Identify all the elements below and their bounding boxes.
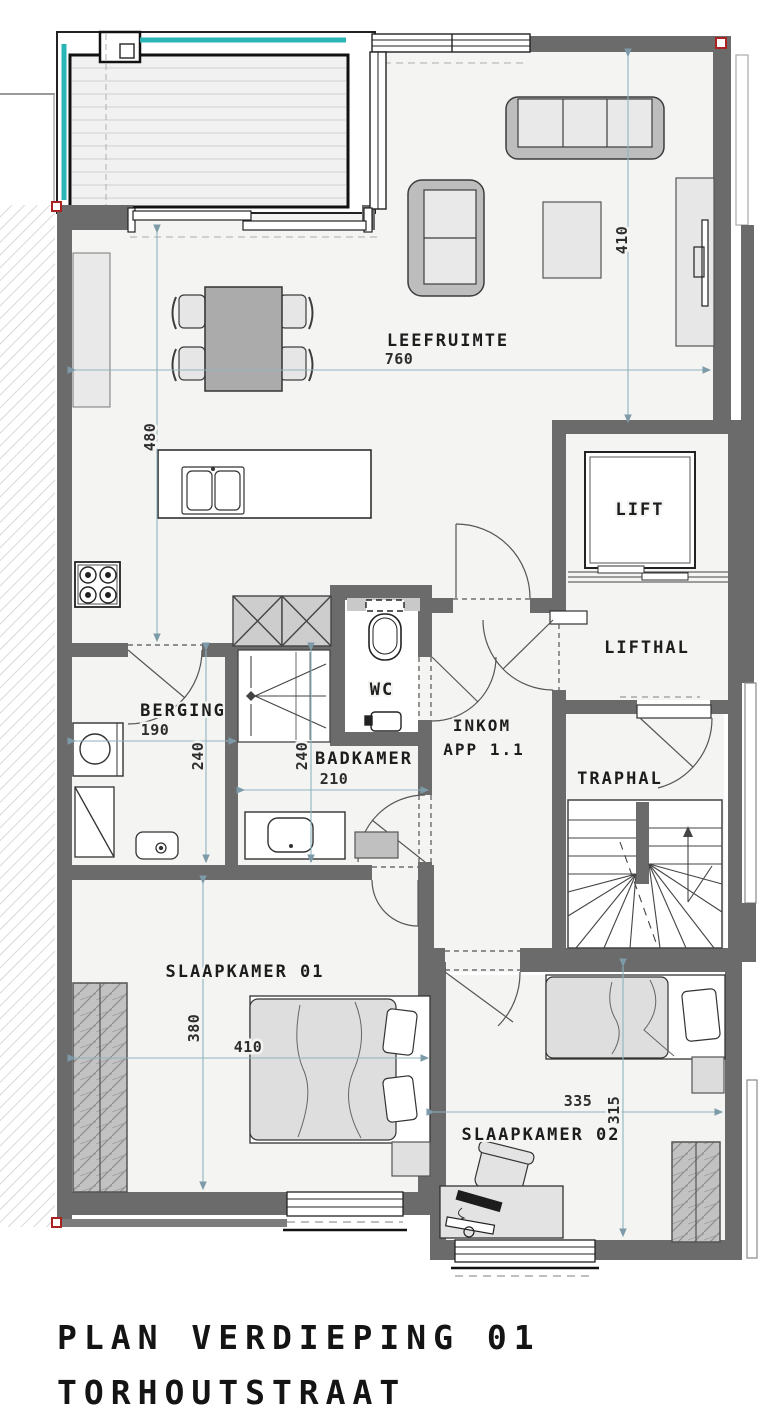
dim-badkamer-depth: 240 xyxy=(293,742,311,771)
badkamer-vanity xyxy=(245,812,345,859)
dim-berging-depth: 240 xyxy=(189,742,207,771)
terrace-deck xyxy=(70,55,348,207)
party-wall-right xyxy=(741,225,754,683)
label-berging: BERGING xyxy=(140,701,226,721)
wardrobe-slaapkamer02 xyxy=(672,1142,720,1242)
dim-badkamer-width: 210 xyxy=(320,770,349,788)
window-slaapkamer02 xyxy=(451,1240,599,1276)
bed-double xyxy=(250,996,430,1143)
dim-berging-width: 190 xyxy=(141,721,170,739)
terrace xyxy=(57,32,375,213)
dim-slk2-depth: 315 xyxy=(605,1096,623,1125)
washing-machine xyxy=(73,723,123,776)
sofa-left xyxy=(408,180,484,296)
label-slaapkamer01: SLAAPKAMER 01 xyxy=(165,962,324,982)
label-slaapkamer02: SLAAPKAMER 02 xyxy=(461,1125,620,1145)
label-leefruimte: LEEFRUIMTE xyxy=(387,331,509,351)
marker-terrace xyxy=(52,202,61,211)
nightstand xyxy=(692,1057,724,1093)
kitchen-counter xyxy=(73,253,110,407)
lift-door-panel-2 xyxy=(642,573,688,580)
tall-cabinets-x xyxy=(233,596,331,646)
cooktop xyxy=(75,562,120,607)
sofa-top xyxy=(506,97,664,159)
label-badkamer: BADKAMER xyxy=(315,749,413,769)
marker-bottom-left xyxy=(52,1218,61,1227)
lift-door-panel-1 xyxy=(598,566,644,573)
window-slaapkamer01 xyxy=(283,1192,407,1230)
berging-appliance xyxy=(136,832,178,859)
bed-single xyxy=(546,975,725,1059)
terrace-drain-box xyxy=(120,44,134,58)
roof-edge-band-top-right xyxy=(736,55,748,225)
plan-title: PLAN VERDIEPING 01 xyxy=(57,1318,541,1357)
dim-slk2-width: 335 xyxy=(564,1092,593,1110)
roof-edge-band-bottom-right xyxy=(747,1080,757,1258)
window-terrace-east xyxy=(370,52,386,209)
berging-cabinet xyxy=(75,787,114,857)
coffee-table xyxy=(543,202,601,278)
title-block: PLAN VERDIEPING 01 TORHOUTSTRAAT xyxy=(57,1318,541,1412)
plan-subtitle: TORHOUTSTRAAT xyxy=(57,1373,406,1412)
badkamer-appliance xyxy=(355,832,398,858)
tv-unit xyxy=(676,178,714,346)
tv-screen xyxy=(702,220,708,306)
marker-top-right xyxy=(716,38,726,48)
shower xyxy=(238,650,330,742)
stairs xyxy=(568,800,722,948)
label-inkom: INKOM xyxy=(453,716,511,735)
party-wall-right-stub xyxy=(741,903,756,962)
dim-leefruimte-depth: 410 xyxy=(613,226,631,255)
dim-leefruimte-width: 760 xyxy=(385,350,414,368)
roof-edge-band-right xyxy=(745,683,756,903)
label-inkom-app: APP 1.1 xyxy=(443,740,524,759)
floor-plan-canvas: 760 410 480 190 240 240 210 380 410 335 … xyxy=(0,0,766,1425)
dim-keuken-depth: 480 xyxy=(141,423,159,452)
dining-table xyxy=(205,287,282,391)
wardrobe-slaapkamer01 xyxy=(73,983,127,1192)
label-lifthal: LIFTHAL xyxy=(604,638,690,658)
dim-slk1-depth: 380 xyxy=(185,1014,203,1043)
bedside-bench xyxy=(392,1142,430,1176)
label-wc: WC xyxy=(370,680,394,700)
dim-slk1-width: 410 xyxy=(234,1038,263,1056)
neighbour-hatch-strip xyxy=(0,205,55,1227)
kitchen-sink xyxy=(182,467,244,514)
label-lift: LIFT xyxy=(616,500,665,520)
floorplan-page: 760 410 480 190 240 240 210 380 410 335 … xyxy=(0,0,766,1425)
label-traphal: TRAPHAL xyxy=(577,769,663,789)
